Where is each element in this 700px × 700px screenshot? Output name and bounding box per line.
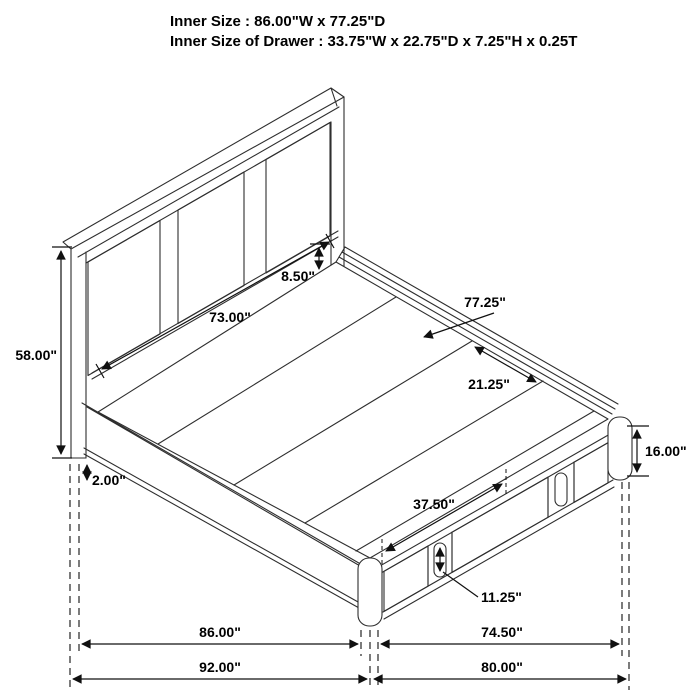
dim-label-base-height: 16.00": [645, 443, 687, 459]
dim-label-drawer-height: 11.25": [481, 589, 522, 605]
dim-label-overall-width: 92.00": [199, 659, 241, 675]
dim-label-headboard-height: 58.00": [15, 347, 57, 363]
platform: [82, 247, 618, 613]
platform-deck: [98, 262, 608, 558]
dim-base-height: 16.00": [627, 426, 687, 476]
dim-label-plank-width: 21.25": [468, 376, 510, 392]
dim-overall-depth: 80.00": [374, 659, 626, 679]
bed-diagram-canvas: 58.00" 73.00" 8.50" 77.25" 21.25": [0, 0, 700, 700]
dim-overall-width: 92.00": [73, 659, 367, 679]
headboard-top-molding: [78, 107, 339, 257]
dim-label-drawer-width: 37.50": [413, 496, 455, 512]
dim-label-footboard-span: 74.50": [481, 624, 523, 640]
corner-post-front-left: [358, 558, 382, 626]
headboard-flute-panel-1: [88, 221, 160, 376]
dim-footboard-span: 74.50": [381, 624, 619, 644]
drawer-handle-right: [555, 473, 567, 506]
dim-platform-width: 86.00": [82, 624, 358, 644]
headboard-flute-panel-3: [266, 123, 330, 274]
title-line-2: Inner Size of Drawer : 33.75"W x 22.75"D…: [170, 33, 577, 50]
dim-label-floor-clearance: 2.00": [92, 472, 126, 488]
headboard-top-edge: [63, 88, 344, 249]
title-block: Inner Size : 86.00"W x 77.25"D Inner Siz…: [170, 13, 577, 50]
dim-label-headboard-width: 73.00": [209, 309, 251, 325]
title-line-1: Inner Size : 86.00"W x 77.25"D: [170, 13, 385, 30]
dim-label-overall-depth: 80.00": [481, 659, 523, 675]
drawer-flute-panel-1: [384, 546, 428, 611]
bed-dimension-diagram-page: 58.00" 73.00" 8.50" 77.25" 21.25": [0, 0, 700, 700]
dim-label-rail-height: 8.50": [281, 268, 315, 284]
dim-label-platform-depth: 77.25": [464, 294, 506, 310]
dim-label-platform-width: 86.00": [199, 624, 241, 640]
dim-headboard-height: 58.00": [15, 247, 72, 458]
extension-lines-right: [622, 482, 629, 690]
extension-lines-left: [70, 464, 79, 690]
headboard-flute-panel-2: [178, 172, 244, 324]
extension-lines-center: [361, 630, 378, 690]
